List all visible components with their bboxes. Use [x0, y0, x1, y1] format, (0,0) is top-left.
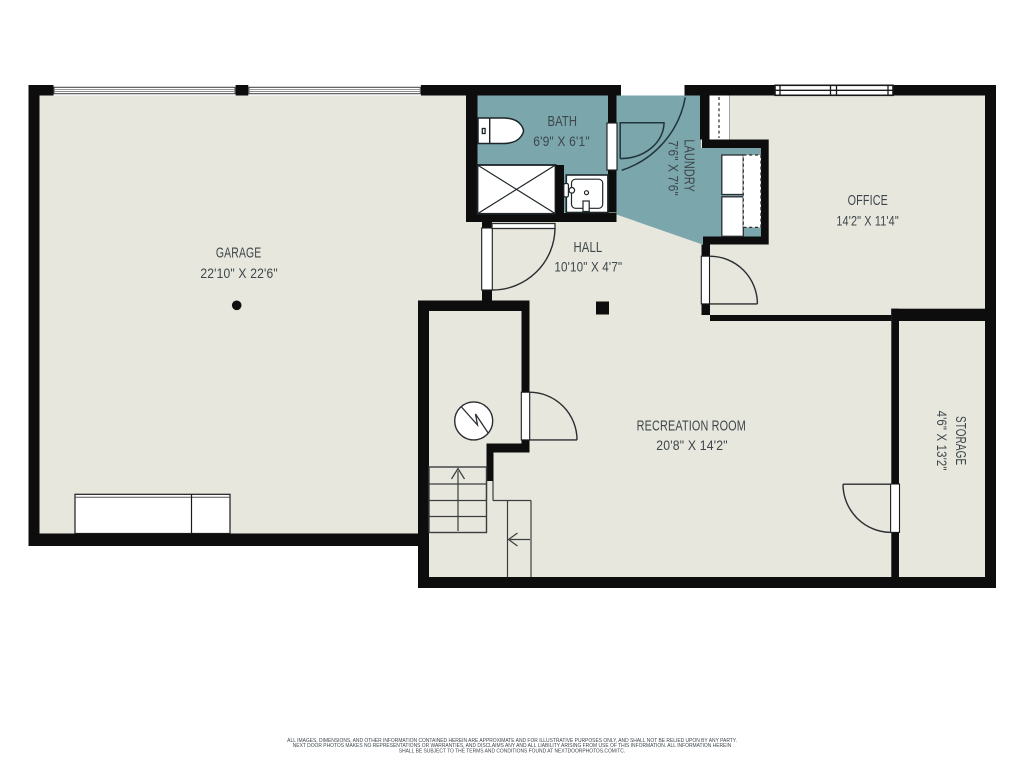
svg-text:RECREATION ROOM: RECREATION ROOM: [637, 417, 746, 434]
svg-text:22'10" X 22'6": 22'10" X 22'6": [200, 265, 278, 281]
svg-text:BATH: BATH: [548, 112, 578, 129]
svg-text:GARAGE: GARAGE: [216, 244, 262, 261]
svg-text:7'6" X 7'6": 7'6" X 7'6": [665, 140, 681, 196]
svg-text:STORAGE: STORAGE: [952, 416, 970, 465]
svg-text:14'2" X 11'4": 14'2" X 11'4": [836, 213, 898, 229]
svg-text:6'9" X 6'1": 6'9" X 6'1": [533, 133, 590, 149]
svg-text:SHALL BE SUBJECT TO THE TERMS: SHALL BE SUBJECT TO THE TERMS AND CONDIT…: [399, 748, 625, 754]
svg-text:HALL: HALL: [573, 238, 602, 255]
svg-text:4'6" X 13'2": 4'6" X 13'2": [934, 411, 950, 471]
svg-text:LAUNDRY: LAUNDRY: [681, 139, 698, 192]
svg-text:20'8" X 14'2": 20'8" X 14'2": [656, 437, 728, 453]
svg-text:OFFICE: OFFICE: [848, 191, 888, 208]
svg-text:10'10" X 4'7": 10'10" X 4'7": [554, 259, 622, 275]
